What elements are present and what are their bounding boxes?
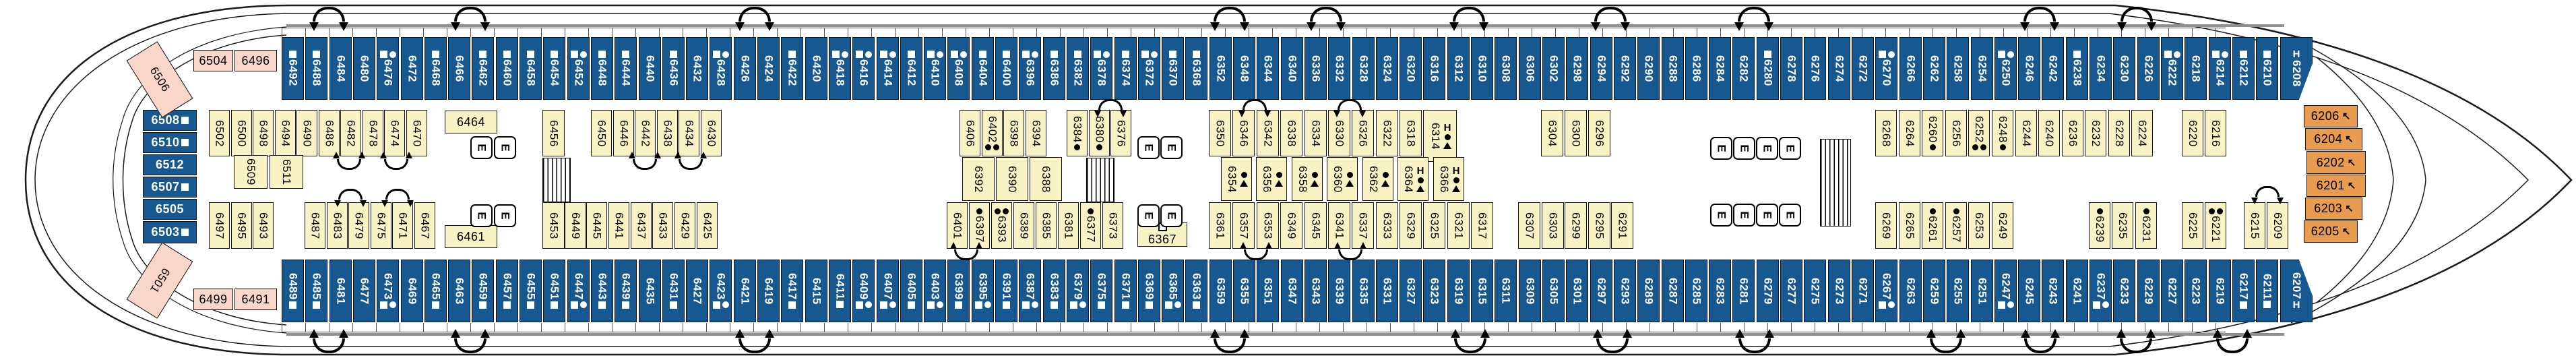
cabin-6451[interactable]: 6451 [543,260,565,322]
cabin-6218[interactable]: 6218 [2185,37,2207,100]
cabin-6502[interactable]: 6502 [209,110,230,156]
cabin-number: 6367 [1148,233,1176,247]
cabin-6235[interactable]: 6235 [2112,202,2133,249]
cabin-6355[interactable]: 6355 [1233,260,1255,322]
cabin-6340[interactable]: 6340 [1281,37,1303,100]
cabin-6265[interactable]: 6265 [1899,202,1920,249]
cabin-6320[interactable]: 6320 [1400,37,1422,100]
cabin-6257[interactable]: 6257 [1945,202,1967,249]
cabin-6372[interactable]: 6372 [1138,37,1160,100]
cabin-6505[interactable]: 6505 [143,199,197,220]
cabin-6237[interactable]: 6237 [2090,260,2112,322]
cabin-6510[interactable]: 6510 [143,132,197,153]
cabin-6412[interactable]: 6412 [900,37,922,100]
cabin-6410[interactable]: 6410 [924,37,946,100]
cabin-6492[interactable]: 6492 [282,37,304,100]
cabin-6310[interactable]: 6310 [1471,37,1493,100]
cabin-6225[interactable]: 6225 [2182,202,2203,249]
cabin-6261[interactable]: 6261 [1922,202,1943,249]
cabin-6459[interactable]: 6459 [472,260,494,322]
cabin-6266[interactable]: 6266 [1899,37,1922,100]
cabin-6497[interactable]: 6497 [209,202,230,249]
cabin-6389[interactable]: 6389 [1013,202,1034,249]
cabin-6268[interactable]: 6268 [1875,110,1897,156]
cabin-6508[interactable]: 6508 [143,110,197,131]
cabin-6228[interactable]: 6228 [2108,110,2130,156]
cabin-6290[interactable]: 6290 [1637,37,1660,100]
cabin-6285[interactable]: 6285 [1685,260,1707,322]
cabin-6234[interactable]: 6234 [2090,37,2112,100]
cabin-6370[interactable]: 6370 [1162,37,1184,100]
cabin-6469[interactable]: 6469 [401,260,423,322]
cabin-6422[interactable]: 6422 [781,37,803,100]
cabin-6371[interactable]: 6371 [1114,260,1137,322]
cabin-6244[interactable]: 6244 [2015,110,2037,156]
cabin-6232[interactable]: 6232 [2085,110,2106,156]
cabin-6233[interactable]: 6233 [2113,260,2135,322]
cabin-6494[interactable]: 6494 [275,110,296,156]
cabin-6428[interactable]: 6428 [710,37,732,100]
cabin-6455[interactable]: 6455 [520,260,542,322]
cabin-6284[interactable]: 6284 [1709,37,1731,100]
cabin-6294[interactable]: 6294 [1590,37,1612,100]
cabin-6223[interactable]: 6223 [2185,260,2207,322]
cabin-6378[interactable]: 6378 [1090,37,1112,100]
cabin-6324[interactable]: 6324 [1376,37,1398,100]
cabin-6312[interactable]: 6312 [1447,37,1470,100]
cabin-6481[interactable]: 6481 [329,260,352,322]
cabin-6291[interactable]: 6291 [1611,202,1633,249]
cabin-6214[interactable]: 6214 [2209,37,2231,100]
cabin-6360[interactable]: 6360 [1327,157,1358,201]
cabin-6393[interactable]: 6393 [991,202,1012,249]
cabin-6491[interactable]: 6491 [234,289,277,310]
cabin-6463[interactable]: 6463 [448,260,470,322]
cabin-6217[interactable]: 6217 [2232,260,2255,322]
cabin-6498[interactable]: 6498 [253,110,274,156]
cabin-6417[interactable]: 6417 [781,260,803,322]
cabin-6283[interactable]: 6283 [1709,260,1731,322]
cabin-6368[interactable]: 6368 [1185,37,1207,100]
cabin-6336[interactable]: 6336 [1305,37,1327,100]
cabin-6224[interactable]: 6224 [2131,110,2153,156]
cabin-6350[interactable]: 6350 [1209,110,1231,156]
cabin-6483[interactable]: 6483 [327,202,348,249]
cabin-6303[interactable]: 6303 [1542,202,1564,249]
cabin-6348[interactable]: 6348 [1233,37,1255,100]
cabin-6440[interactable]: 6440 [639,37,661,100]
cabin-6415[interactable]: 6415 [805,260,827,322]
cabin-6452[interactable]: 6452 [567,37,590,100]
cabin-6260[interactable]: 6260 [1922,110,1943,156]
cabin-6328[interactable]: 6328 [1352,37,1375,100]
cabin-6450[interactable]: 6450 [591,110,612,156]
cabin-6462[interactable]: 6462 [472,37,494,100]
cabin-6322[interactable]: 6322 [1376,110,1398,156]
cabin-6335[interactable]: 6335 [1352,260,1375,322]
elevator-icon: E [1756,137,1778,160]
cabin-6425[interactable]: 6425 [697,202,718,249]
cabin-6242[interactable]: 6242 [2042,37,2064,100]
cabin-6420[interactable]: 6420 [805,37,827,100]
cabin-number: 6292 [1619,55,1632,82]
cabin-6453[interactable]: 6453 [542,202,565,249]
cabin-6259[interactable]: 6259 [1923,260,1945,322]
cabin-6299[interactable]: 6299 [1565,202,1587,249]
cabin-6404[interactable]: 6404 [972,37,994,100]
cabin-6485[interactable]: 6485 [305,260,327,322]
cabin-6429[interactable]: 6429 [674,202,695,249]
cabin-6212[interactable]: 6212 [2232,37,2255,100]
cabin-6210[interactable]: 6210 [2256,37,2278,100]
cabin-6307[interactable]: 6307 [1518,202,1540,249]
cabin-6339[interactable]: 6339 [1328,260,1350,322]
cabin-6253[interactable]: 6253 [1968,202,1990,249]
cabin-6447[interactable]: 6447 [567,260,590,322]
cabin-6471[interactable]: 6471 [392,202,413,249]
cabin-6311[interactable]: 6311 [1495,260,1517,322]
cabin-6256[interactable]: 6256 [1945,110,1967,156]
cabin-6363[interactable]: 6363 [1185,260,1207,322]
cabin-6211[interactable]: 6211 [2256,260,2278,322]
cabin-6275[interactable]: 6275 [1804,260,1826,322]
cabin-6406[interactable]: 6406 [960,110,980,156]
cabin-6423[interactable]: 6423 [710,260,732,322]
cabin-6385[interactable]: 6385 [1036,202,1057,249]
cabin-6386[interactable]: 6386 [1043,37,1065,100]
cabin-6421[interactable]: 6421 [734,260,756,322]
cabin-6486[interactable]: 6486 [319,110,340,156]
cabin-6264[interactable]: 6264 [1899,110,1920,156]
cabin-6287[interactable]: 6287 [1662,260,1684,322]
cabin-6344[interactable]: 6344 [1257,37,1279,100]
cabin-6369[interactable]: 6369 [1138,260,1160,322]
cabin-6472[interactable]: 6472 [401,37,423,100]
cabin-6269[interactable]: 6269 [1875,202,1897,249]
cabin-6252[interactable]: 6252 [1968,110,1990,156]
cabin-6201[interactable]: 6201↖ [2306,175,2366,197]
cabin-6204[interactable]: 6204↖ [2305,128,2362,150]
cabin-6419[interactable]: 6419 [757,260,780,322]
cabin-6205[interactable]: 6205↖ [2304,220,2358,243]
cabin-6308[interactable]: 6308 [1495,37,1517,100]
cabin-6289[interactable]: 6289 [1637,260,1660,322]
cabin-6296[interactable]: 6296 [1588,110,1610,156]
cabin-6437[interactable]: 6437 [631,202,652,249]
cabin-6488[interactable]: 6488 [305,37,327,100]
cabin-6394[interactable]: 6394 [1026,110,1046,156]
cabin-6251[interactable]: 6251 [1971,260,1993,322]
black-dot-icon [1930,144,1936,150]
cabin-6250[interactable]: 6250 [1994,37,2017,100]
cabin-6288[interactable]: 6288 [1662,37,1684,100]
cabin-6396[interactable]: 6396 [1019,37,1041,100]
cabin-6325[interactable]: 6325 [1423,202,1445,249]
cabin-6400[interactable]: 6400 [995,37,1017,100]
cabin-6329[interactable]: 6329 [1400,202,1422,249]
cabin-6499[interactable]: 6499 [193,289,233,310]
cabin-6512[interactable]: 6512 [143,154,197,175]
cabin-6280[interactable]: 6280 [1757,37,1779,100]
cabin-6229[interactable]: 6229 [2137,260,2160,322]
cabin-6476[interactable]: 6476 [377,37,399,100]
cabin-6382[interactable]: 6382 [1067,37,1089,100]
cabin-6424[interactable]: 6424 [757,37,780,100]
cabin-6403[interactable]: 6403 [924,260,946,322]
cabin-6373[interactable]: 6373 [1102,202,1123,249]
cabin-6457[interactable]: 6457 [496,260,518,322]
cabin-6430[interactable]: 6430 [701,110,722,156]
cabin-6377[interactable]: 6377 [1080,202,1101,249]
cabin-6468[interactable]: 6468 [425,37,447,100]
cabin-6467[interactable]: 6467 [414,202,435,249]
cabin-6388[interactable]: 6388 [1030,157,1062,201]
cabin-6411[interactable]: 6411 [829,260,851,322]
cabin-6262[interactable]: 6262 [1923,37,1945,100]
cabin-6407[interactable]: 6407 [877,260,899,322]
cabin-6295[interactable]: 6295 [1588,202,1610,249]
cabin-6427[interactable]: 6427 [686,260,708,322]
cabin-6315[interactable]: 6315 [1471,260,1493,322]
cabin-6366[interactable]: 6366H [1433,157,1464,201]
cabin-6456[interactable]: 6456 [542,110,565,156]
cabin-6245[interactable]: 6245 [2018,260,2040,322]
cabin-6458[interactable]: 6458 [520,37,542,100]
cabin-6230[interactable]: 6230 [2113,37,2135,100]
cabin-6216[interactable]: 6216 [2205,110,2226,156]
cabin-6270[interactable]: 6270 [1875,37,1897,100]
cabin-6227[interactable]: 6227 [2161,260,2183,322]
cabin-6293[interactable]: 6293 [1614,260,1636,322]
cabin-6511[interactable]: 6511 [270,155,303,189]
cabin-number: 6483 [331,212,344,239]
cabin-6477[interactable]: 6477 [353,260,375,322]
cabin-6409[interactable]: 6409 [852,260,875,322]
cabin-6364[interactable]: 6364H [1397,157,1428,201]
cabin-6292[interactable]: 6292 [1614,37,1636,100]
cabin-6434[interactable]: 6434 [679,110,699,156]
cabin-6398[interactable]: 6398 [1003,110,1024,156]
cabin-6302[interactable]: 6302 [1542,37,1565,100]
cabin-6273[interactable]: 6273 [1828,260,1850,322]
cabin-6277[interactable]: 6277 [1780,260,1802,322]
cabin-6338[interactable]: 6338 [1280,110,1302,156]
cabin-6449[interactable]: 6449 [565,202,586,249]
cabin-6431[interactable]: 6431 [662,260,685,322]
cabin-6391[interactable]: 6391 [995,260,1017,322]
cabin-6464[interactable]: 6464 [445,111,497,133]
cabin-6298[interactable]: 6298 [1566,37,1588,100]
cabin-6383[interactable]: 6383 [1043,260,1065,322]
cabin-6202[interactable]: 6202↖ [2306,151,2366,174]
cabin-number: 6318 [1404,120,1418,147]
cabin-6323[interactable]: 6323 [1423,260,1445,322]
cabin-6278[interactable]: 6278 [1780,37,1802,100]
cabin-6248[interactable]: 6248 [1992,110,2013,156]
cabin-6240[interactable]: 6240 [2038,110,2060,156]
cabin-6354[interactable]: 6354 [1221,157,1252,201]
cabin-6473[interactable]: 6473 [377,260,399,322]
cabin-6221[interactable]: 6221 [2205,202,2226,249]
cabin-6374[interactable]: 6374 [1114,37,1137,100]
cabin-6239[interactable]: 6239 [2089,202,2110,249]
cabin-6255[interactable]: 6255 [1947,260,1969,322]
cabin-6300[interactable]: 6300 [1565,110,1587,156]
cabin-number: 6419 [762,278,776,305]
cabin-6258[interactable]: 6258 [1947,37,1969,100]
cabin-6448[interactable]: 6448 [591,37,613,100]
cabin-6379[interactable]: 6379 [1067,260,1089,322]
cabin-6274[interactable]: 6274 [1828,37,1850,100]
cabin-6405[interactable]: 6405 [900,260,922,322]
cabin-6306[interactable]: 6306 [1519,37,1541,100]
cabin-6444[interactable]: 6444 [615,37,637,100]
cabin-6441[interactable]: 6441 [608,202,629,249]
cabin-6203[interactable]: 6203↖ [2305,198,2362,220]
cabin-6319[interactable]: 6319 [1447,260,1470,322]
cabin-6433[interactable]: 6433 [652,202,673,249]
cabin-6219[interactable]: 6219 [2209,260,2231,322]
cabin-6334[interactable]: 6334 [1305,110,1327,156]
cabin-6479[interactable]: 6479 [348,202,369,249]
cabin-6454[interactable]: 6454 [543,37,565,100]
cabin-6493[interactable]: 6493 [253,202,274,249]
cabin-6231[interactable]: 6231 [2135,202,2157,249]
cabin-6209[interactable]: 6209 [2267,202,2288,249]
cabin-6507[interactable]: 6507 [143,177,197,198]
cabin-6254[interactable]: 6254 [1971,37,1993,100]
cabin-6286[interactable]: 6286 [1685,37,1707,100]
cabin-6345[interactable]: 6345 [1305,202,1327,249]
cabin-6359[interactable]: 6359 [1210,260,1232,322]
cabin-6352[interactable]: 6352 [1210,37,1232,100]
cabin-6267[interactable]: 6267 [1875,260,1897,322]
cabin-6414[interactable]: 6414 [877,37,899,100]
cabin-6281[interactable]: 6281 [1732,260,1755,322]
cabin-6446[interactable]: 6446 [613,110,634,156]
cabin-6316[interactable]: 6316 [1423,37,1445,100]
cabin-6395[interactable]: 6395 [972,260,994,322]
cabin-6226[interactable]: 6226 [2137,37,2160,100]
cabin-6496[interactable]: 6496 [234,50,277,71]
cabin-6475[interactable]: 6475 [371,202,391,249]
cabin-6436[interactable]: 6436 [662,37,685,100]
cabin-6343[interactable]: 6343 [1305,260,1327,322]
cabin-6495[interactable]: 6495 [231,202,252,249]
cabin-6333[interactable]: 6333 [1376,202,1398,249]
cabin-6504[interactable]: 6504 [193,50,233,71]
cabin-6402[interactable]: 6402 [982,110,1003,156]
cabin-6318[interactable]: 6318 [1400,110,1422,156]
cabin-6249[interactable]: 6249 [1992,202,2013,249]
cabin-6439[interactable]: 6439 [615,260,637,322]
cabin-6309[interactable]: 6309 [1519,260,1541,322]
cabin-6509[interactable]: 6509 [234,155,268,189]
cabin-6390[interactable]: 6390 [996,157,1028,201]
cabin-6358[interactable]: 6358 [1292,157,1323,201]
cabin-6392[interactable]: 6392 [962,157,995,201]
cabin-6416[interactable]: 6416 [852,37,875,100]
cabin-6503[interactable]: 6503 [143,221,197,243]
cabin-6465[interactable]: 6465 [425,260,447,322]
cabin-6241[interactable]: 6241 [2066,260,2088,322]
cabin-6399[interactable]: 6399 [947,260,970,322]
cabin-6375[interactable]: 6375 [1090,260,1112,322]
cabin-6387[interactable]: 6387 [1019,260,1041,322]
cabin-6480[interactable]: 6480 [353,37,375,100]
cabin-6362[interactable]: 6362 [1362,157,1393,201]
cabin-6445[interactable]: 6445 [586,202,607,249]
cabin-6247[interactable]: 6247 [1994,260,2017,322]
cabin-6349[interactable]: 6349 [1280,202,1302,249]
cabin-6365[interactable]: 6365 [1162,260,1184,322]
cabin-6490[interactable]: 6490 [296,110,317,156]
cabin-6305[interactable]: 6305 [1542,260,1565,322]
cabin-6426[interactable]: 6426 [734,37,756,100]
cabin-6272[interactable]: 6272 [1852,37,1874,100]
cabin-6243[interactable]: 6243 [2042,260,2064,322]
cabin-6408[interactable]: 6408 [947,37,970,100]
cabin-6435[interactable]: 6435 [639,260,661,322]
cabin-6331[interactable]: 6331 [1376,260,1398,322]
cabin-6384[interactable]: 6384 [1067,110,1088,156]
cabin-6474[interactable]: 6474 [384,110,405,156]
cabin-6279[interactable]: 6279 [1757,260,1779,322]
cabin-6478[interactable]: 6478 [363,110,383,156]
cabin-6443[interactable]: 6443 [591,260,613,322]
cabin-6484[interactable]: 6484 [329,37,352,100]
cabin-6470[interactable]: 6470 [406,110,427,156]
cabin-6460[interactable]: 6460 [496,37,518,100]
cabin-6356[interactable]: 6356 [1256,157,1287,201]
cabin-6206[interactable]: 6206↖ [2304,105,2358,127]
cabin-6246[interactable]: 6246 [2018,37,2040,100]
cabin-6466[interactable]: 6466 [448,37,470,100]
cabin-6321[interactable]: 6321 [1447,202,1470,249]
cabin-6432[interactable]: 6432 [686,37,708,100]
cabin-6215[interactable]: 6215 [2244,202,2265,249]
cabin-6489[interactable]: 6489 [282,260,304,322]
cabin-6461[interactable]: 6461 [445,225,497,248]
cabin-6220[interactable]: 6220 [2182,110,2203,156]
cabin-6327[interactable]: 6327 [1400,260,1422,322]
cabin-6263[interactable]: 6263 [1899,260,1922,322]
sofa-bed-square-icon [1070,301,1077,309]
cabin-6482[interactable]: 6482 [340,110,361,156]
cabin-6418[interactable]: 6418 [829,37,851,100]
cabin-6271[interactable]: 6271 [1852,260,1874,322]
cabin-6317[interactable]: 6317 [1471,202,1493,249]
cabin-6332[interactable]: 6332 [1328,37,1350,100]
cabin-6297[interactable]: 6297 [1590,260,1612,322]
cabin-6222[interactable]: 6222 [2161,37,2183,100]
cabin-6276[interactable]: 6276 [1804,37,1826,100]
cabin-6304[interactable]: 6304 [1541,110,1563,156]
cabin-6236[interactable]: 6236 [2062,110,2083,156]
cabin-6381[interactable]: 6381 [1058,202,1079,249]
cabin-6314[interactable]: 6314H [1423,110,1457,162]
cabin-6487[interactable]: 6487 [305,202,325,249]
cabin-6442[interactable]: 6442 [635,110,656,156]
cabin-6500[interactable]: 6500 [231,110,252,156]
cabin-6351[interactable]: 6351 [1257,260,1279,322]
cabin-6282[interactable]: 6282 [1732,37,1755,100]
cabin-6438[interactable]: 6438 [657,110,678,156]
cabin-6301[interactable]: 6301 [1566,260,1588,322]
cabin-6361[interactable]: 6361 [1209,202,1231,249]
cabin-6347[interactable]: 6347 [1281,260,1303,322]
cabin-6238[interactable]: 6238 [2066,37,2088,100]
